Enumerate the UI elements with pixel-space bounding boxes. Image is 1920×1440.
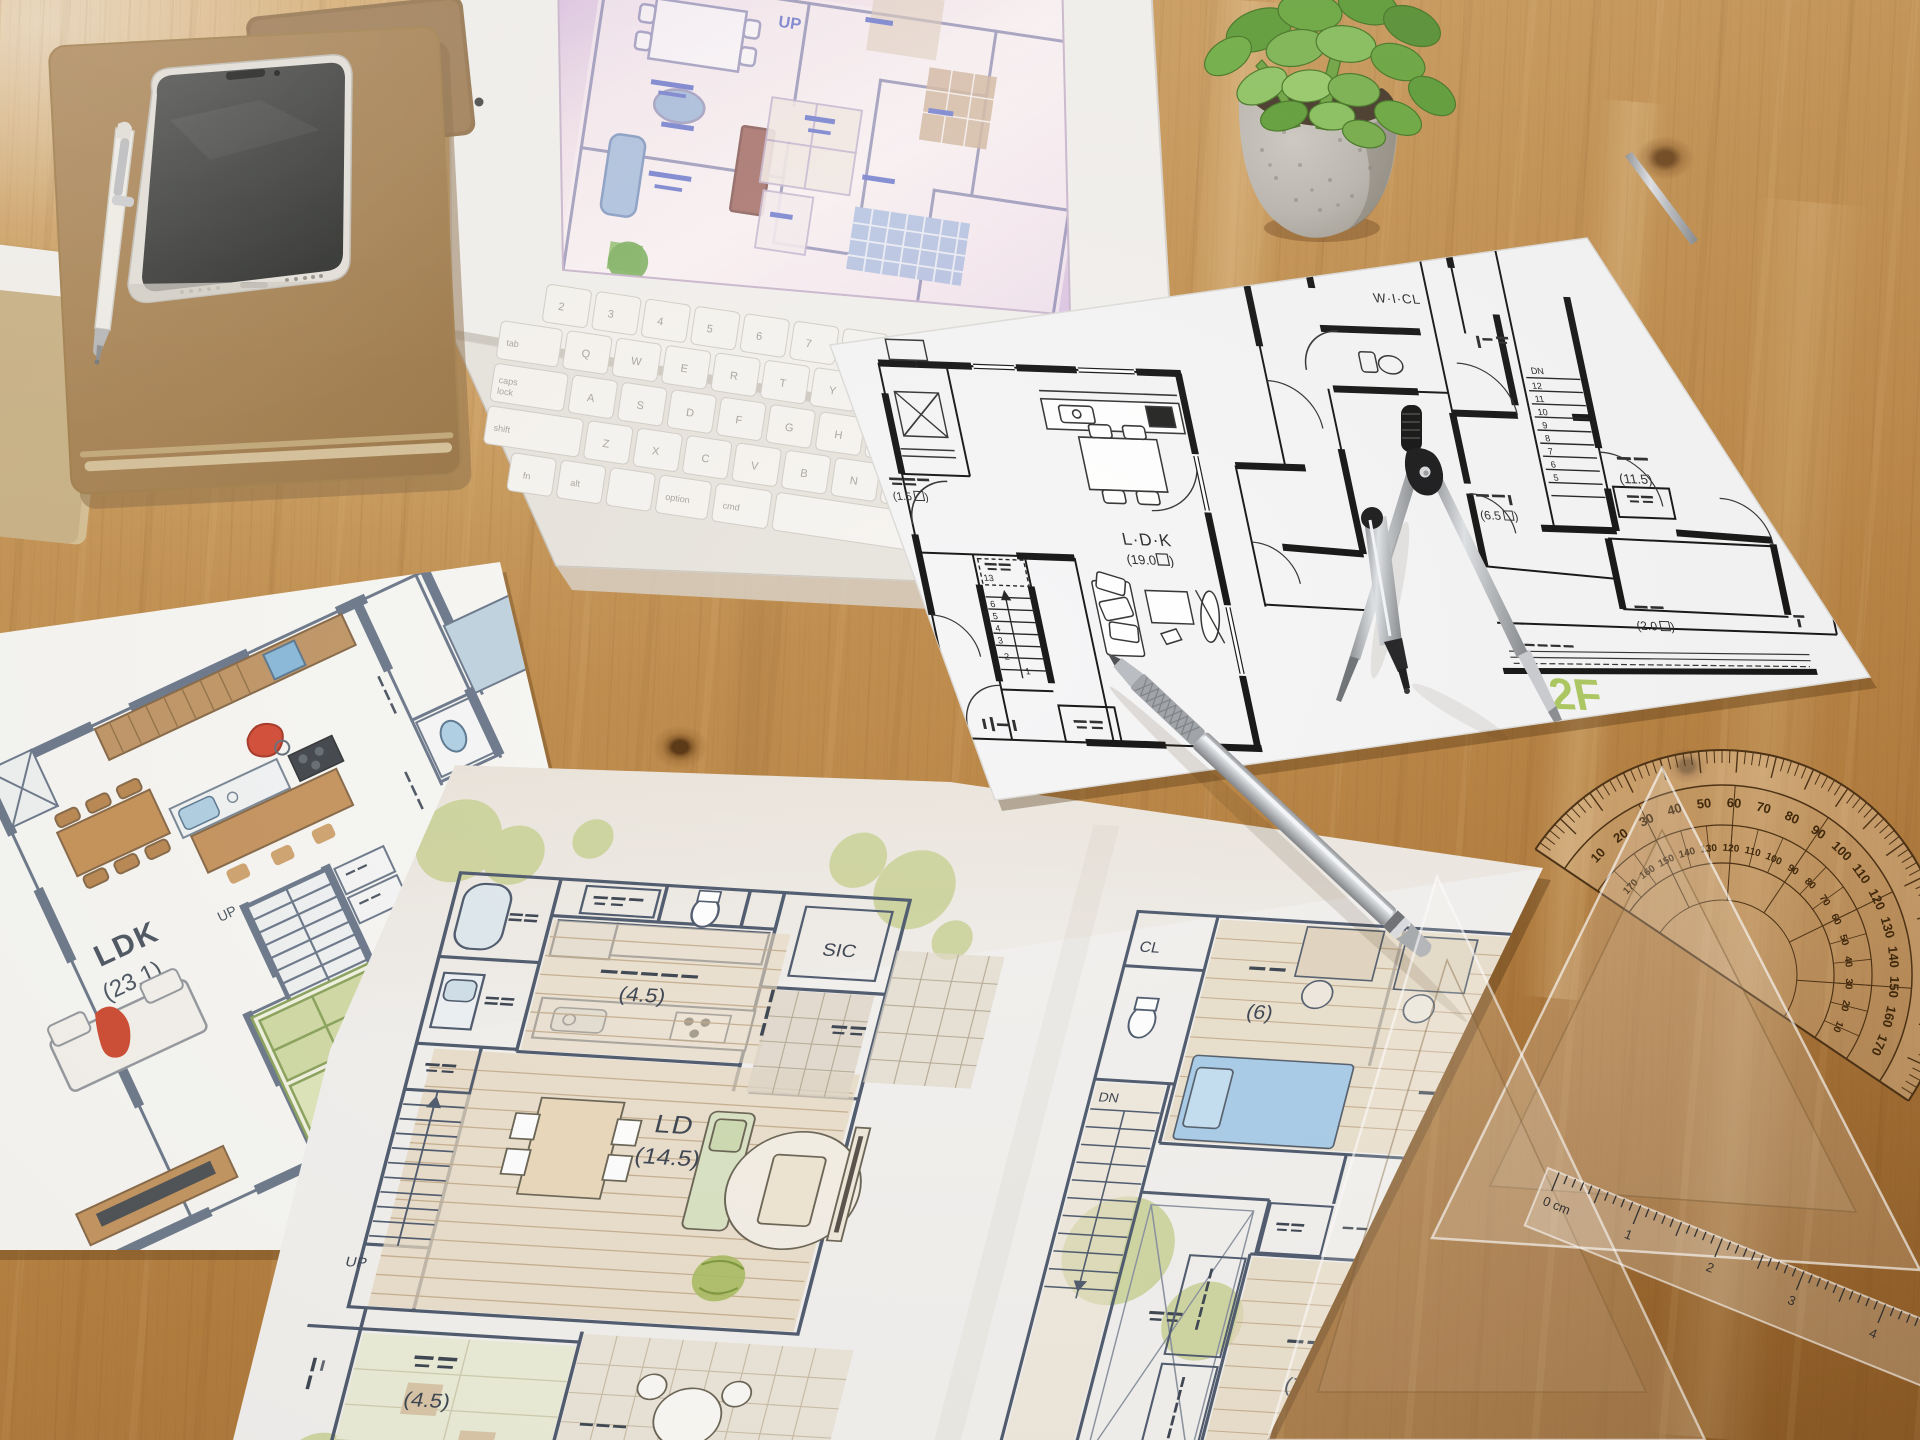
svg-text:150: 150: [1886, 976, 1902, 999]
svg-text:50: 50: [1696, 795, 1712, 811]
svg-text:30: 30: [1842, 978, 1854, 990]
svg-text:60: 60: [1726, 795, 1741, 811]
svg-text:40: 40: [1842, 956, 1854, 969]
svg-text:120: 120: [1722, 843, 1740, 855]
svg-text:140: 140: [1885, 945, 1902, 968]
